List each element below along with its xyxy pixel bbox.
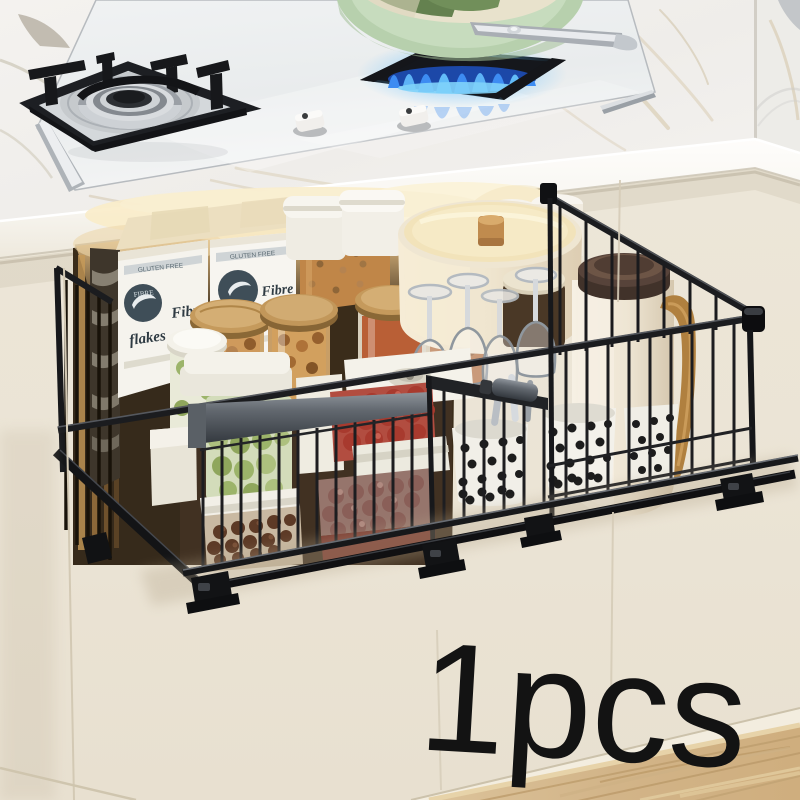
svg-text:1pcs: 1pcs	[415, 609, 752, 800]
